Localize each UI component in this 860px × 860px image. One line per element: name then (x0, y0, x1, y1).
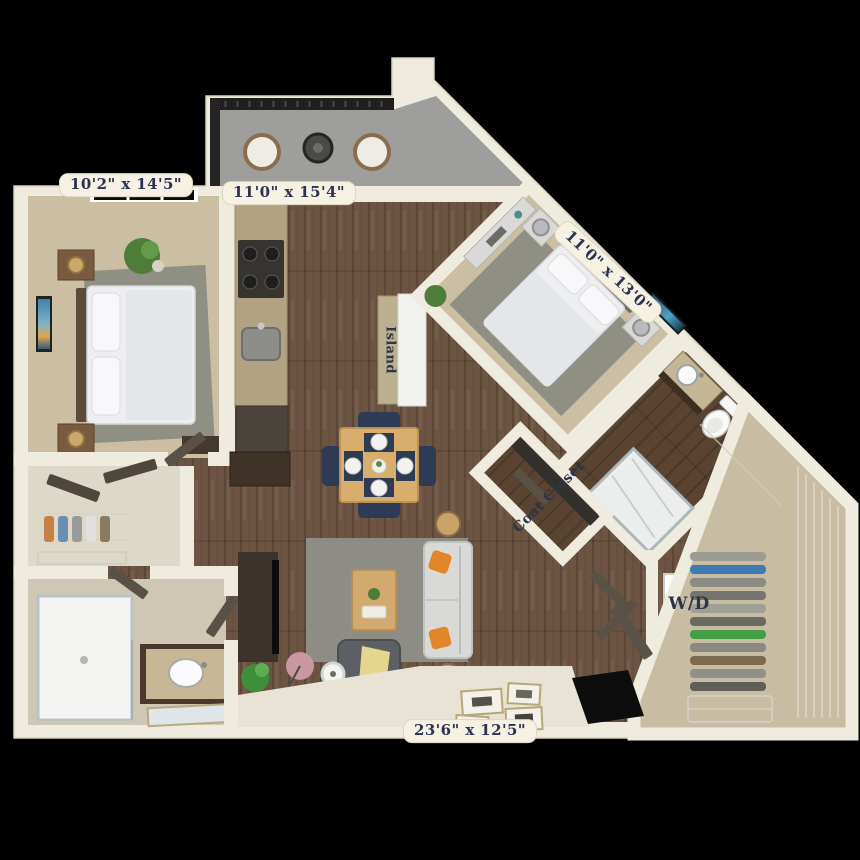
centerpiece-greens (376, 461, 382, 467)
bed1-headboard (76, 288, 87, 422)
bedroom1-dimensions-label: 10'2" x 14'5" (59, 173, 193, 197)
kitchen-sink (242, 328, 280, 360)
island-label: Island (383, 326, 398, 374)
plate-south (371, 480, 387, 496)
bathroom1-right-wall-top (224, 566, 238, 596)
closet-clothes-2 (58, 516, 68, 542)
patio-chair-left (245, 135, 279, 169)
tv-screen (272, 560, 279, 654)
bedroom1 (28, 188, 230, 458)
burner-4 (265, 275, 279, 289)
closet2-clothes-9 (690, 656, 766, 665)
shower-drain (80, 656, 88, 664)
balcony-railing-left (210, 98, 220, 190)
patio-chair-right (355, 135, 389, 169)
lamp1-top (68, 257, 84, 273)
bathroom1-right-wall-bottom (224, 640, 238, 736)
plate-north (371, 434, 387, 450)
bed1-pillow-bottom (92, 357, 120, 415)
washer-dryer-label: W/D (668, 594, 709, 614)
plate-west (345, 458, 361, 474)
coffee-table-tray (362, 606, 386, 618)
burner-1 (243, 247, 257, 261)
bed1-duvet (126, 290, 192, 420)
floor-plant-leaves (255, 663, 269, 677)
plate-east (397, 458, 413, 474)
patio-table-center (313, 143, 323, 153)
closet2-clothes-3 (690, 578, 766, 587)
closet-clothes-3 (72, 516, 82, 542)
fridge (230, 452, 290, 486)
kitchen-counter (235, 202, 287, 408)
frame-1-art (472, 696, 493, 706)
bedroom1-right-wall (219, 186, 235, 456)
left-closet (28, 458, 180, 566)
vanity1-sink (169, 659, 203, 687)
closet2-clothes-8 (690, 643, 766, 652)
living-dimensions-label: 23'6" x 12'5" (403, 719, 537, 743)
vanity1-faucet (201, 662, 207, 668)
bathroom1 (28, 566, 236, 726)
burner-2 (265, 247, 279, 261)
left-closet-right-wall (180, 466, 194, 566)
floor-lamp-bulb (330, 671, 336, 677)
closet2-clothes-10 (690, 669, 766, 678)
balcony-dimensions-label: 11'0" x 15'4" (222, 181, 356, 205)
bedroom1-plant-pot (152, 260, 164, 272)
dishwasher (236, 406, 288, 454)
closet-bath-wall-right (150, 566, 236, 579)
lamp1-bottom (68, 431, 84, 447)
closet2-clothes-11 (690, 682, 766, 691)
bed1-pillow-top (92, 293, 120, 351)
bedroom1-plant-leaves (141, 241, 159, 259)
side-table-top (436, 512, 460, 536)
coffee-table-plant (368, 588, 380, 600)
closet-bath-wall-left (14, 566, 108, 579)
kitchen (230, 202, 290, 486)
closet2-clothes-7 (690, 630, 766, 639)
island-countertop (398, 294, 426, 406)
bedroom1-wall-art (36, 296, 52, 352)
burner-3 (243, 275, 257, 289)
closet-clothes-4 (86, 516, 96, 542)
closet2-clothes-6 (690, 617, 766, 626)
leaning-mirror (148, 704, 235, 726)
frame-2-art (516, 690, 532, 699)
kitchen-faucet (258, 323, 265, 330)
closet-clothes-1 (44, 516, 54, 542)
closet2-clothes-2 (690, 565, 766, 574)
closet-clothes-5 (100, 516, 110, 542)
floorplan-stage: 10'2" x 14'5" 11'0" x 15'4" 11'0" x 13'0… (0, 0, 860, 860)
closet2-clothes-1 (690, 552, 766, 561)
